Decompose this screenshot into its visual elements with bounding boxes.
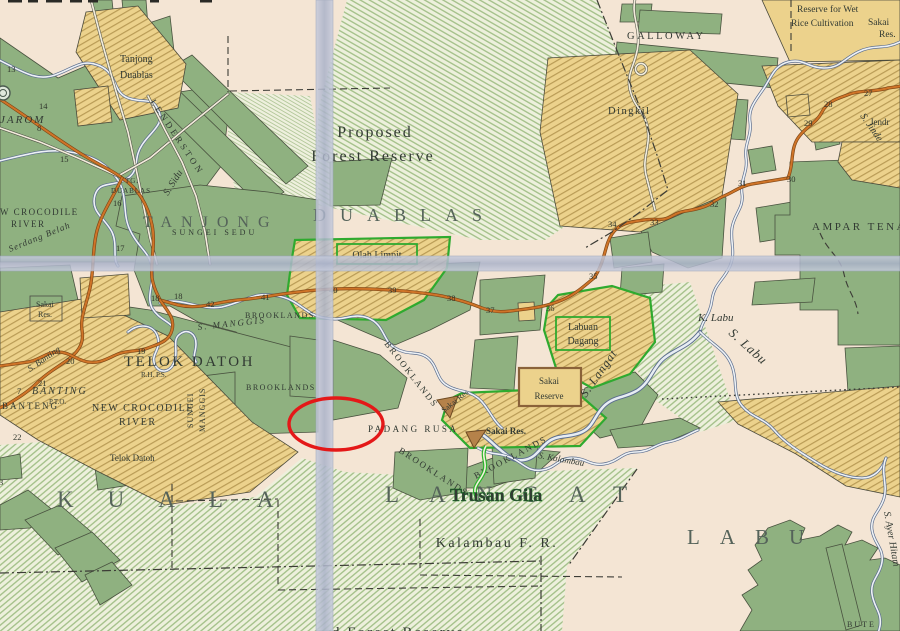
cut-off-text-fragment	[46, 0, 62, 3]
sakai-res-west1: Sakai	[36, 300, 55, 309]
milestone-7: 7	[17, 386, 21, 396]
kalambau-fr-label: Kalambau F. R.	[436, 536, 559, 551]
river-k-labu: K. Labu	[697, 312, 734, 324]
galloway-label: GALLOWAY	[627, 31, 706, 42]
dingkil-label: Dingkil	[608, 106, 651, 117]
milestone-8: 8	[37, 123, 41, 133]
milestone-18b: 18	[174, 291, 183, 301]
tanjong-duablas-small1: Tanjong	[120, 54, 153, 65]
new-crocodile-river1: NEW CROCODILE	[92, 403, 194, 414]
district-duablas: DUABLAS	[313, 205, 496, 225]
milestone-36: 36	[546, 303, 555, 313]
sakai-res-west2: Res.	[38, 310, 52, 319]
cut-off-text-fragment	[8, 0, 22, 3]
milestone-29: 29	[804, 118, 813, 128]
cut-off-text-fragment	[200, 0, 212, 3]
brooklands-label-2: BROOKLANDS	[246, 383, 316, 392]
milestone-38: 38	[447, 293, 456, 303]
cut-off-text-fragment	[28, 0, 38, 3]
milestone-30: 30	[787, 174, 796, 184]
crocodile-river-nw2: RIVER	[11, 219, 46, 229]
telok-datoh-small: Telok Datoh	[110, 453, 155, 463]
map-viewport: TANJONG DUABLAS KUALA LANGAT LABU Propos…	[0, 0, 900, 631]
banteng-label: BANTENG	[2, 401, 59, 411]
milestone-20: 20	[66, 356, 75, 366]
milestone-18a: 18	[151, 293, 160, 303]
milestone-32: 32	[710, 199, 719, 209]
forest-reserve-cut-label: d Forest Reserve	[332, 625, 465, 631]
sakai-res-center: Sakai Res.	[486, 426, 526, 436]
milestone-13: 13	[7, 64, 16, 74]
milestone-37: 37	[486, 305, 495, 315]
milestone-3: 3	[0, 477, 3, 487]
telok-datoh-label: TELOK DATOH	[124, 354, 255, 370]
sakai-res-ne-line2: Res.	[879, 30, 896, 40]
sungei-sedu-label: SUNGEI SEDU	[172, 228, 257, 237]
district-labu: LABU	[687, 525, 824, 549]
labuan-dagang-line2: Dagang	[567, 336, 598, 347]
district-kuala: KUALA	[57, 487, 308, 512]
proposed-forest-line1: Proposed	[337, 124, 413, 141]
milestone-27: 27	[864, 88, 873, 98]
milestone-19: 19	[137, 346, 146, 356]
well-symbol	[0, 86, 10, 100]
vertical-fold-band	[316, 0, 333, 631]
ampar-tenang-label: AMPAR TENANG	[812, 221, 900, 233]
telok-datoh-sub: R.H. P.S.	[141, 371, 167, 379]
jendram-label: Jendr	[870, 117, 890, 127]
wet-rice-line1: Reserve for Wet	[797, 4, 859, 15]
milestone-35: 35	[589, 271, 598, 281]
river-sungei-vertical: SUNGEI	[186, 393, 195, 428]
sakai-res-ne-line1: Sakai	[868, 18, 889, 28]
milestone-22: 22	[13, 432, 22, 442]
new-crocodile-river2: RIVER	[119, 417, 157, 428]
milestone-34: 34	[608, 219, 617, 229]
sakai-reserve-box-line1: Sakai	[539, 376, 559, 386]
bute-label: BUTE	[847, 620, 876, 629]
cut-off-text-fragment	[150, 0, 159, 3]
milestone-16: 16	[113, 198, 122, 208]
tg-duablas-line1: TG.	[125, 177, 139, 185]
milestone-39: 39	[388, 285, 397, 295]
labuan-dagang-line1: Labuan	[568, 322, 598, 333]
milestone-31: 31	[738, 178, 747, 188]
cut-off-text-fragment	[70, 0, 82, 3]
milestone-41: 41	[261, 292, 270, 302]
crocodile-river-nw1: W CROCODILE	[0, 207, 79, 217]
milestone-14: 14	[39, 101, 48, 111]
milestone-33: 33	[650, 217, 659, 227]
tg-duablas-line2: DUABLAS	[111, 187, 151, 195]
milestone-21: 21	[38, 378, 47, 388]
milestone-17: 17	[116, 243, 125, 253]
trusan-gila-annotation: Trusan Gila	[450, 485, 542, 505]
wet-rice-line2: Rice Cultivation	[791, 19, 854, 29]
cut-off-text-fragment	[88, 0, 98, 3]
horizontal-fold-band	[0, 256, 900, 271]
map-canvas: TANJONG DUABLAS KUALA LANGAT LABU Propos…	[0, 0, 900, 631]
milestone-42: 42	[206, 299, 215, 309]
milestone-28: 28	[824, 99, 833, 109]
river-manggis-vertical: MANGGIS	[198, 388, 207, 432]
sakai-reserve-box-line2: Reserve	[535, 391, 564, 401]
milestone-15: 15	[60, 154, 69, 164]
tanjong-duablas-small2: Duablas	[120, 70, 153, 81]
